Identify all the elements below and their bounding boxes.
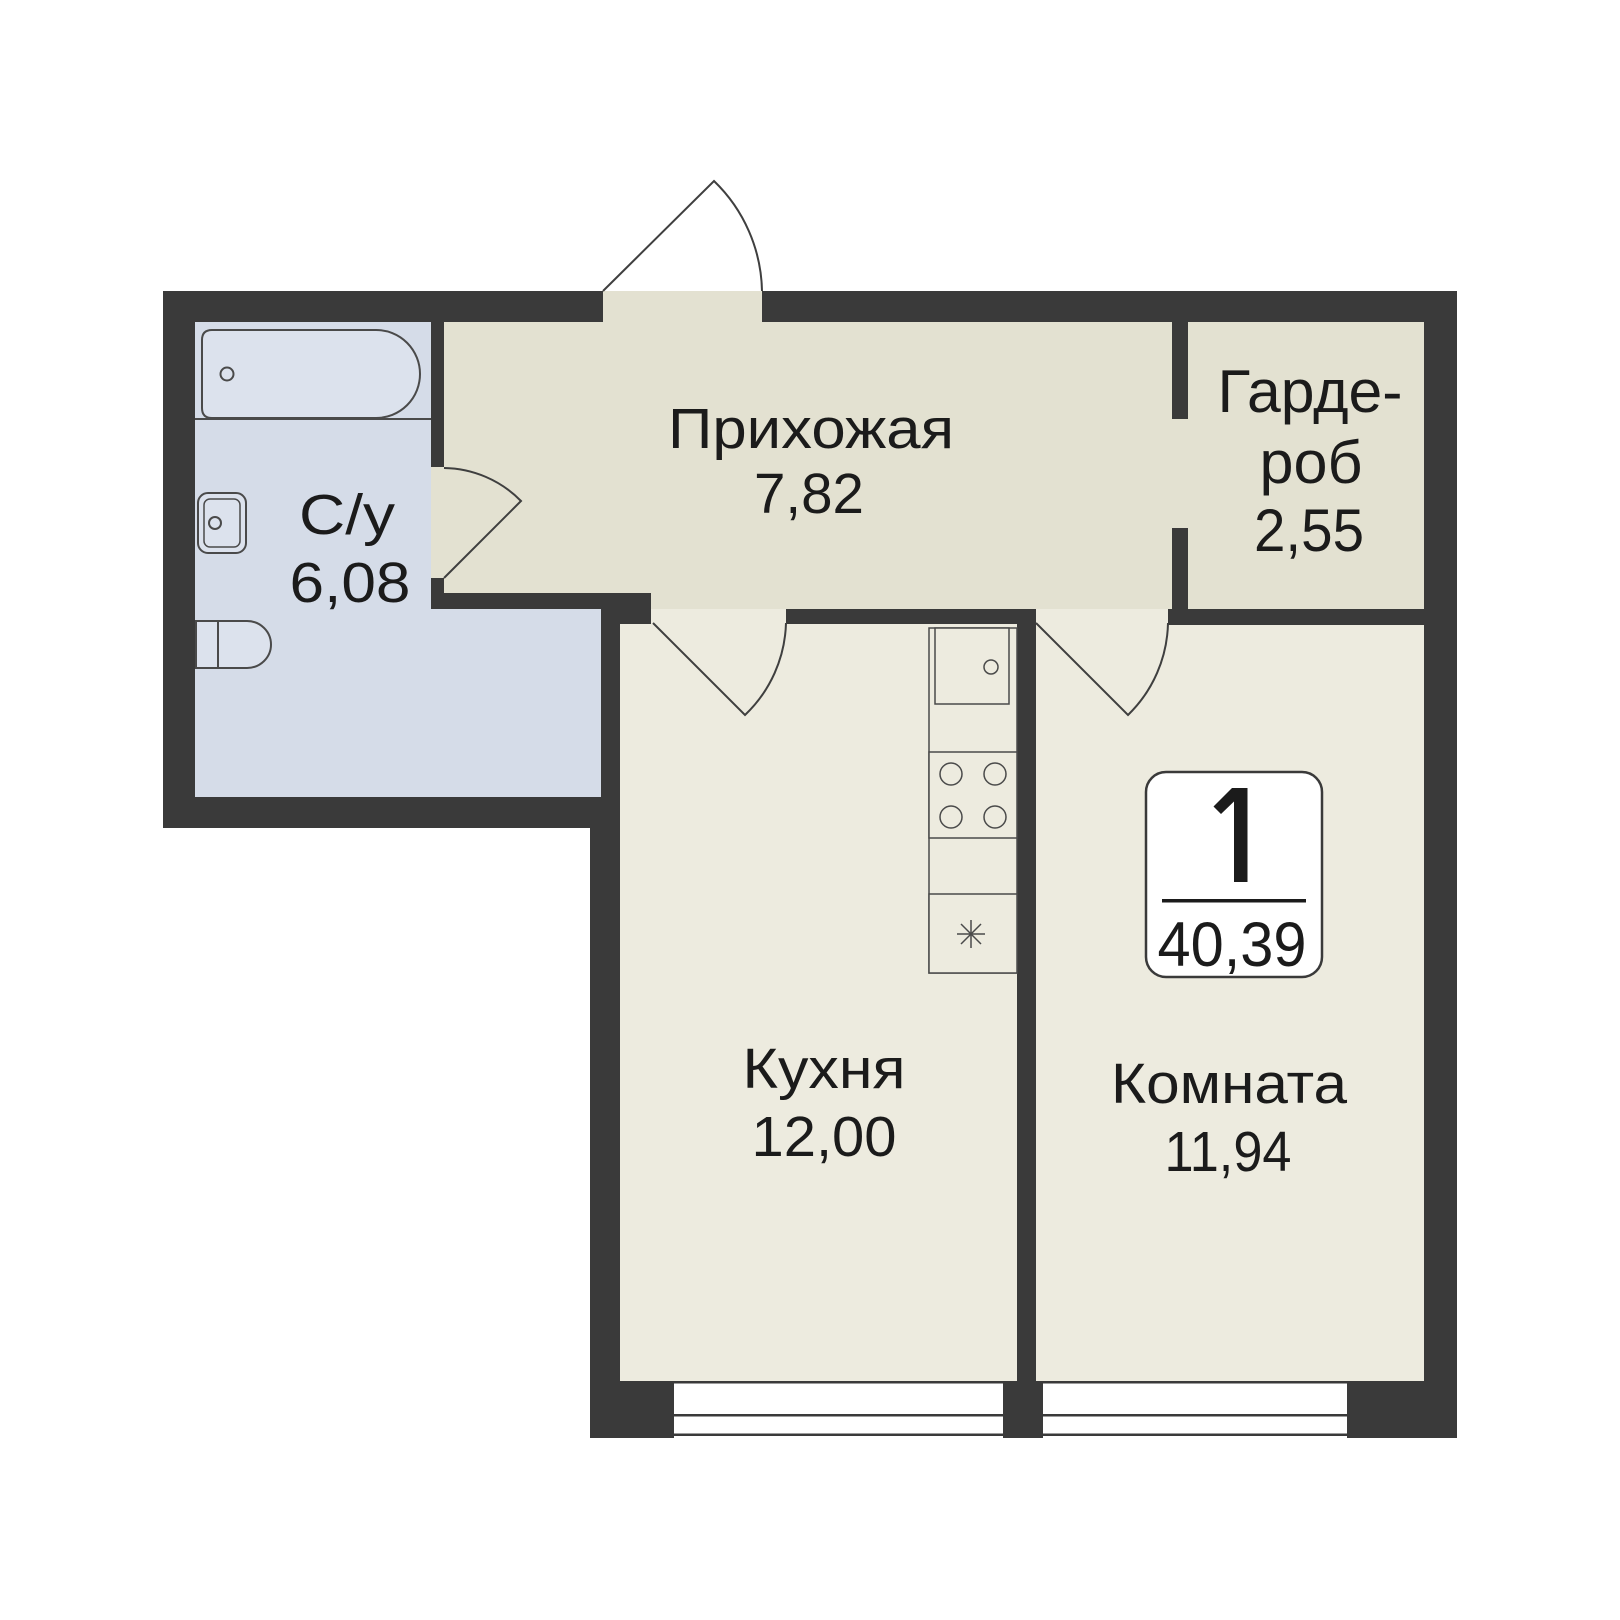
- svg-text:Комната: Комната: [1111, 1052, 1347, 1116]
- svg-text:С/у: С/у: [299, 483, 396, 547]
- svg-text:Прихожая: Прихожая: [668, 397, 954, 461]
- svg-text:6,08: 6,08: [290, 551, 411, 615]
- svg-text:40,39: 40,39: [1158, 910, 1307, 980]
- svg-text:2,55: 2,55: [1254, 497, 1364, 564]
- svg-text:11,94: 11,94: [1165, 1120, 1292, 1184]
- svg-text:Гарде-: Гарде-: [1218, 358, 1403, 425]
- svg-text:12,00: 12,00: [752, 1105, 897, 1169]
- svg-text:7,82: 7,82: [754, 462, 864, 526]
- svg-text:роб: роб: [1260, 429, 1363, 496]
- svg-text:Кухня: Кухня: [743, 1037, 906, 1101]
